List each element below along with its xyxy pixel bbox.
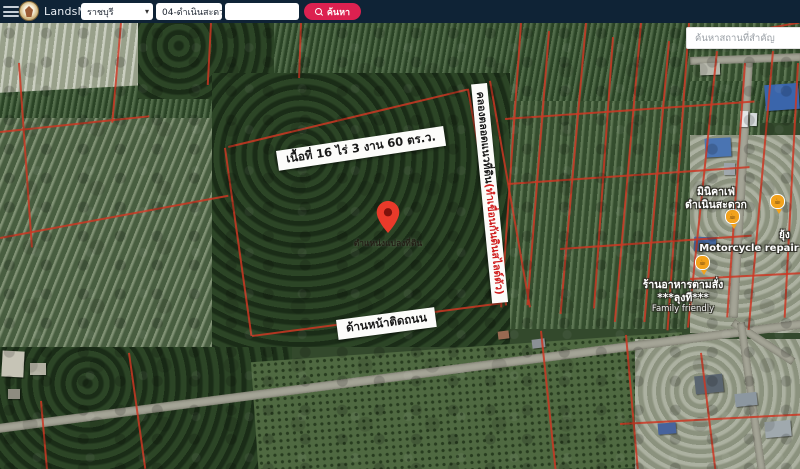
map-canvas[interactable]: เนื้อที่ 16 ไร่ 3 งาน 60 ตร.ว. คลองตลอดแ… bbox=[0, 23, 800, 469]
search-button-label: ค้นหา bbox=[327, 5, 350, 19]
cafe-poi-pin[interactable]: ☕ bbox=[770, 194, 785, 209]
top-navbar: LandsMaps ราชบุรี ▾ 04-ดำเนินสะดวก ▾ ค้น… bbox=[0, 0, 800, 23]
orchard-zone bbox=[0, 118, 232, 354]
menu-icon[interactable] bbox=[3, 6, 19, 17]
cafe-icon: ☕ bbox=[774, 197, 781, 206]
poi-restaurant-line1: ร้านอาหารตามสั่ง bbox=[628, 279, 738, 292]
cafe-icon: ☕ bbox=[729, 212, 736, 221]
poi-label-motorcycle-repair[interactable]: Motorcycle repair bbox=[695, 243, 800, 255]
field-zone bbox=[0, 23, 148, 93]
parcel-location-pin[interactable] bbox=[376, 201, 400, 237]
village-ground-zone bbox=[635, 339, 800, 469]
building bbox=[694, 374, 724, 395]
building bbox=[764, 420, 791, 438]
department-of-lands-logo-icon bbox=[19, 1, 39, 21]
building bbox=[750, 113, 757, 126]
province-select-value: ราชบุรี bbox=[87, 5, 114, 19]
poi-restaurant-tag: Family friendly bbox=[628, 304, 738, 314]
poi-label-cafe[interactable]: มินิคาเฟ่ ดำเนินสะดวก bbox=[666, 186, 766, 211]
poi-cafe-line2: ดำเนินสะดวก bbox=[666, 199, 766, 212]
building bbox=[30, 363, 46, 375]
poi-cafe-line1: มินิคาเฟ่ bbox=[666, 186, 766, 199]
district-select-value: 04-ดำเนินสะดวก bbox=[162, 5, 222, 19]
poi-restaurant-line2: ***ลุงที*** bbox=[628, 292, 738, 305]
orchard-dots-zone bbox=[251, 332, 691, 469]
parcel-pin-label: ตำแหน่งแปลงที่ดิน bbox=[343, 236, 433, 250]
poi-label-restaurant[interactable]: ร้านอาหารตามสั่ง ***ลุงที*** Family frie… bbox=[628, 279, 738, 314]
search-icon bbox=[315, 8, 323, 16]
building bbox=[8, 389, 20, 399]
restaurant-icon: ☕ bbox=[699, 258, 706, 267]
cafe-poi-pin[interactable]: ☕ bbox=[725, 209, 740, 224]
poi-label-clipped[interactable]: ยุ้ง bbox=[779, 230, 800, 242]
building bbox=[1, 350, 24, 377]
chevron-down-icon: ▾ bbox=[141, 7, 149, 16]
province-select[interactable]: ราชบุรี ▾ bbox=[81, 3, 153, 20]
building bbox=[532, 338, 546, 349]
building bbox=[734, 392, 757, 407]
building bbox=[658, 422, 677, 435]
building bbox=[498, 330, 510, 339]
district-select[interactable]: 04-ดำเนินสะดวก ▾ bbox=[156, 3, 222, 20]
building bbox=[705, 137, 732, 157]
place-search-input[interactable] bbox=[686, 27, 800, 49]
landsmaps-app: LandsMaps ราชบุรี ▾ 04-ดำเนินสะดวก ▾ ค้น… bbox=[0, 0, 800, 469]
search-button[interactable]: ค้นหา bbox=[304, 3, 361, 20]
parcel-number-input[interactable] bbox=[225, 3, 299, 20]
restaurant-poi-pin[interactable]: ☕ bbox=[695, 255, 710, 270]
building bbox=[700, 63, 720, 76]
